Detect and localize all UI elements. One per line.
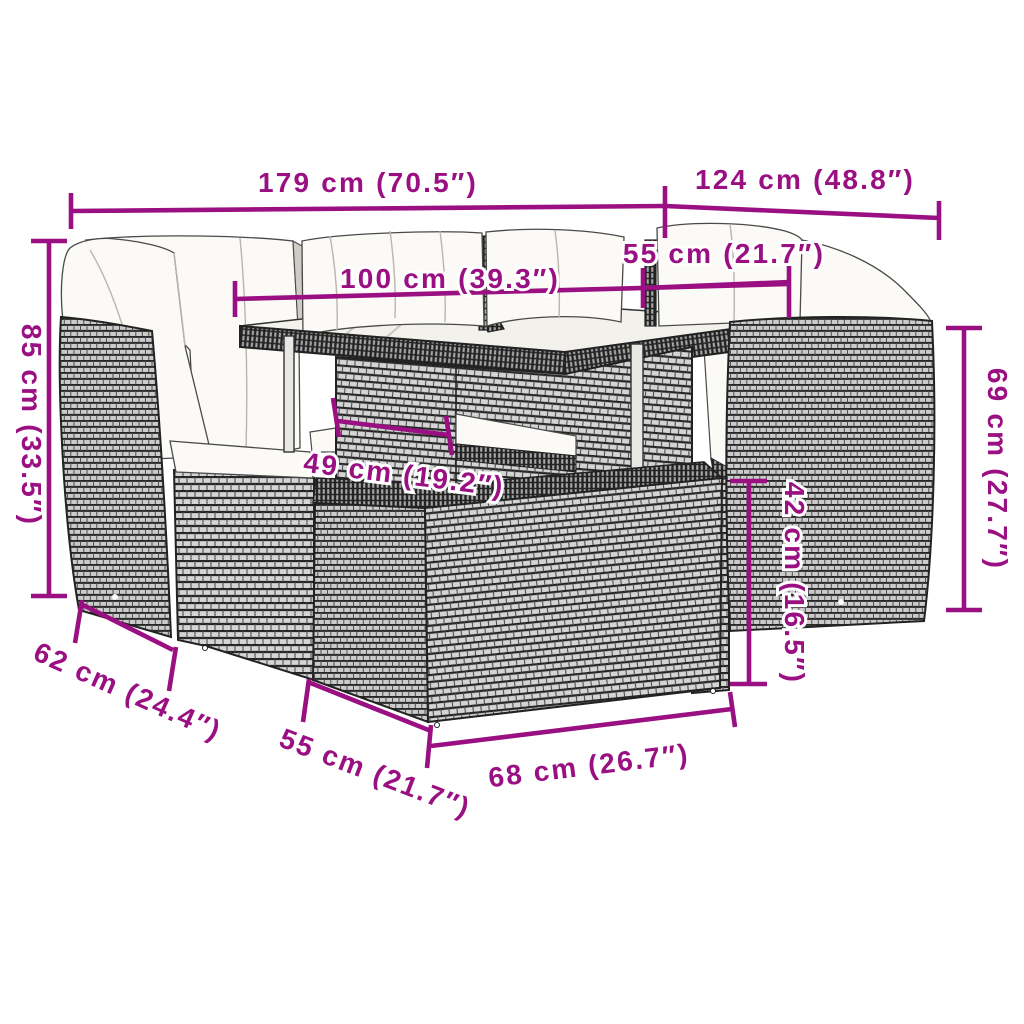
svg-text:124 cm (48.8″): 124 cm (48.8″) <box>695 164 915 195</box>
svg-text:42 cm (16.5″): 42 cm (16.5″) <box>779 482 810 684</box>
svg-text:85 cm (33.5″): 85 cm (33.5″) <box>16 324 47 526</box>
svg-text:100 cm (39.3″): 100 cm (39.3″) <box>340 263 560 294</box>
svg-text:179 cm (70.5″): 179 cm (70.5″) <box>258 167 478 198</box>
svg-text:69 cm (27.7″): 69 cm (27.7″) <box>982 368 1013 570</box>
svg-text:55 cm (21.7″): 55 cm (21.7″) <box>623 238 825 269</box>
